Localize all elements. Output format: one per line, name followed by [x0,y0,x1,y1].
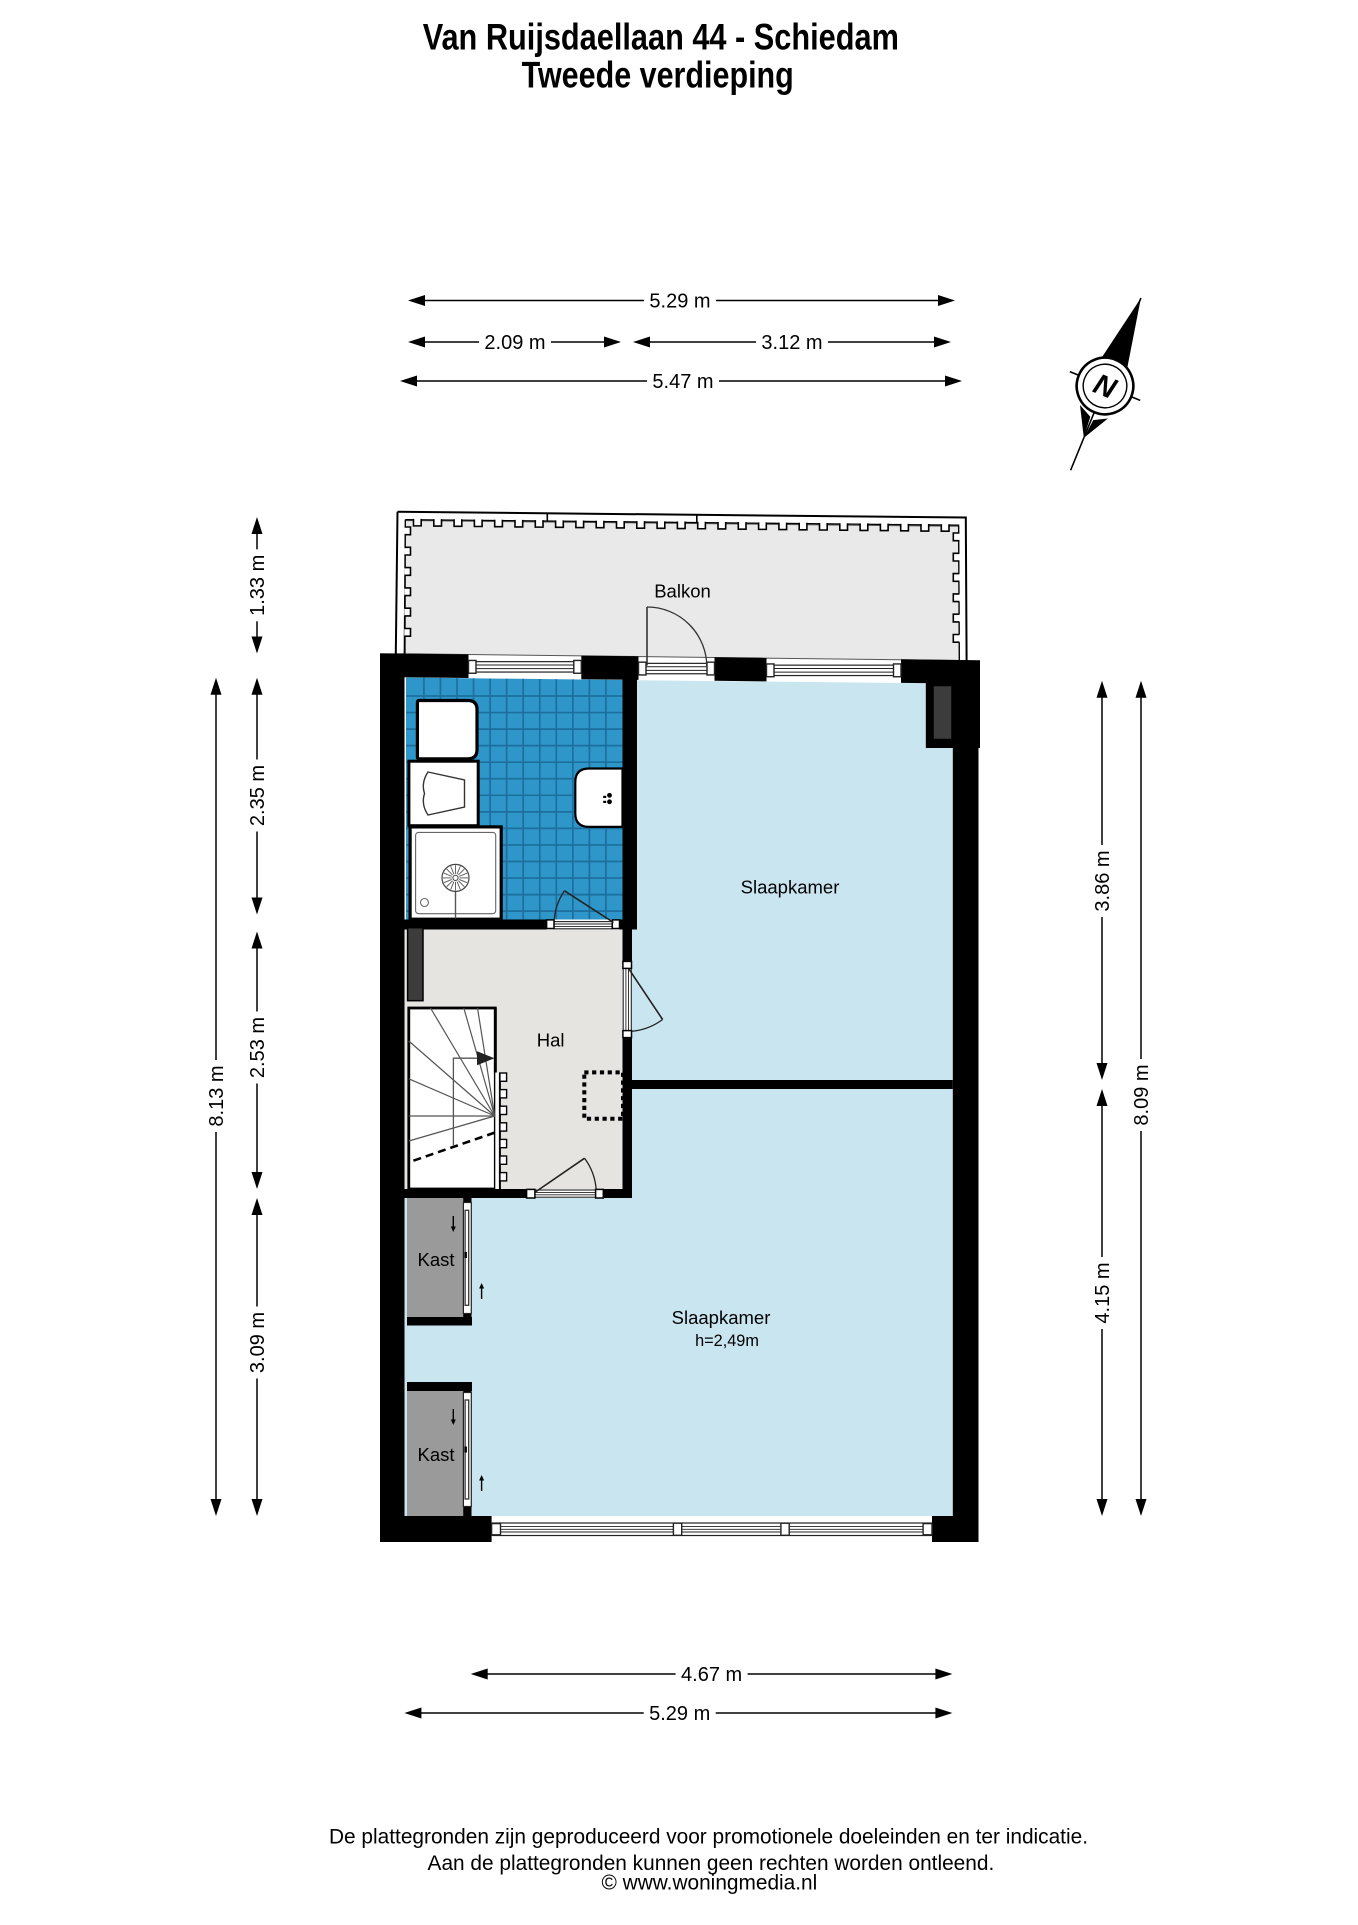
svg-text:Tweede verdieping: Tweede verdieping [522,54,794,95]
svg-text:Slaapkamer: Slaapkamer [672,1307,771,1328]
svg-text:4.67 m: 4.67 m [681,1664,742,1686]
svg-text:2.35 m: 2.35 m [247,765,269,826]
svg-text:Hal: Hal [537,1030,565,1051]
svg-text:5.47 m: 5.47 m [652,371,713,393]
svg-text:4.15 m: 4.15 m [1092,1262,1114,1323]
svg-text:5.29 m: 5.29 m [649,291,710,313]
svg-text:3.09 m: 3.09 m [247,1312,269,1373]
svg-text:Kast: Kast [417,1444,454,1465]
svg-text:8.09 m: 8.09 m [1131,1064,1153,1125]
svg-text:h=2,49m: h=2,49m [695,1332,759,1350]
svg-text:Van Ruijsdaellaan 44 - Schieda: Van Ruijsdaellaan 44 - Schiedam [423,16,899,57]
svg-text:5.29 m: 5.29 m [649,1703,710,1725]
svg-text:Balkon: Balkon [654,580,711,601]
svg-text:1.33 m: 1.33 m [247,555,269,616]
svg-text:3.12 m: 3.12 m [761,332,822,354]
svg-text:3.86 m: 3.86 m [1092,850,1114,911]
svg-text:Slaapkamer: Slaapkamer [741,877,840,898]
svg-text:2.53 m: 2.53 m [247,1017,269,1078]
svg-text:2.09 m: 2.09 m [484,332,545,354]
svg-text:Kast: Kast [417,1249,454,1270]
svg-text:De plattegronden zijn geproduc: De plattegronden zijn geproduceerd voor … [329,1826,1088,1849]
svg-text:8.13 m: 8.13 m [206,1065,228,1126]
svg-text:© www.woningmedia.nl: © www.woningmedia.nl [602,1872,818,1895]
